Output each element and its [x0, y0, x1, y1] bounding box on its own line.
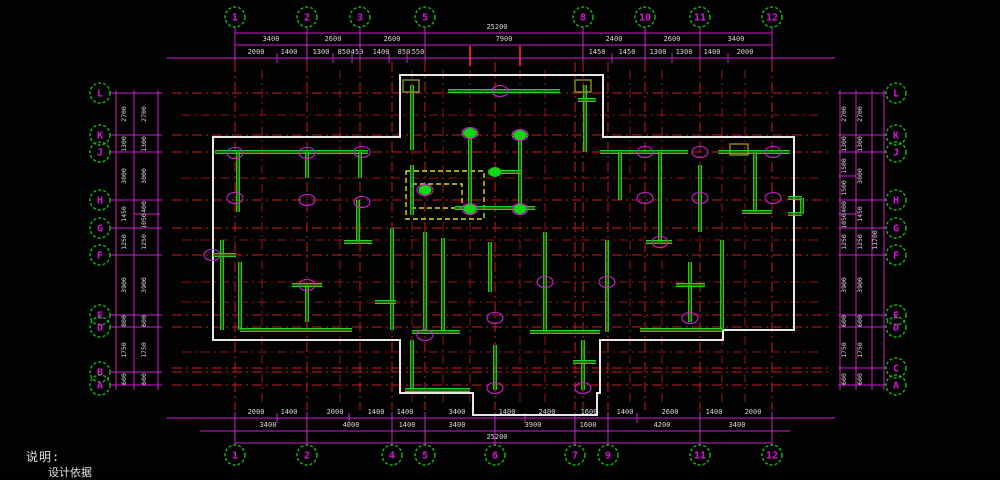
axis-bubble-label: C: [893, 364, 899, 375]
axis-bubble-2: 2: [297, 445, 317, 465]
dim-text: 600: [856, 373, 864, 385]
axis-bubble-L: L: [90, 83, 110, 103]
axis-bubble-5: 5: [415, 445, 435, 465]
dim-text: 1500: [840, 180, 848, 196]
axis-bubble-1: 1: [225, 445, 245, 465]
dim-text: 1250: [840, 234, 848, 250]
axis-bubble-8: 8: [573, 7, 593, 27]
dim-text: 2700: [140, 106, 148, 122]
axis-bubble-label: 5: [422, 13, 428, 24]
column-dot: [419, 185, 432, 195]
dim-text: 1750: [856, 342, 864, 358]
dim-text: 3000: [120, 168, 128, 184]
dim-text: 1300: [140, 136, 148, 152]
axis-bubble-label: G: [97, 224, 103, 235]
dim-text: 3400: [729, 421, 746, 429]
axis-bubble-label: 11: [694, 13, 706, 24]
dim-text: 1400: [617, 408, 634, 416]
axis-bubble-label: 12: [766, 13, 778, 24]
axis-bubble-label: F: [97, 251, 103, 262]
dim-text: 1400: [397, 408, 414, 416]
dim-text: 600: [856, 315, 864, 327]
axis-bubble-G: G: [886, 218, 906, 238]
column-dot: [514, 130, 527, 140]
axis-bubble-label: A: [97, 381, 103, 392]
axis-bubble-9: 9: [598, 445, 618, 465]
column-dot: [464, 204, 477, 214]
dim-text: 2000: [248, 408, 265, 416]
axis-bubble-label: 12: [766, 451, 778, 462]
dim-text: 400: [140, 201, 148, 213]
axis-bubble-H: H: [886, 190, 906, 210]
dim-text: 4000: [343, 421, 360, 429]
dim-text: 600: [120, 373, 128, 385]
axis-bubble-label: B: [97, 368, 103, 379]
axis-bubble-label: L: [893, 89, 899, 100]
dim-text: 1400: [706, 408, 723, 416]
dim-text: 550: [412, 48, 425, 56]
axis-bubble-11: 11: [690, 7, 710, 27]
axis-bubble-label: H: [893, 196, 899, 207]
axis-bubble-10: 10: [635, 7, 655, 27]
dim-text: 25200: [486, 433, 507, 441]
building-outline: [213, 75, 794, 415]
cad-drawing: 2520034002600260079002400260034002000140…: [0, 0, 1000, 475]
axis-bubble-label: J: [97, 148, 103, 159]
axis-bubble-F: F: [90, 245, 110, 265]
axis-bubble-label: D: [97, 323, 103, 334]
axis-bubble-label: K: [893, 131, 899, 142]
axis-bubble-label: 1: [232, 13, 238, 24]
axis-bubble-label: A: [893, 381, 899, 392]
dim-text: 1250: [120, 234, 128, 250]
axis-bubble-label: G: [893, 224, 899, 235]
dim-text: 800: [120, 315, 128, 327]
dim-text: 850: [398, 48, 411, 56]
dim-text: 2000: [248, 48, 265, 56]
dim-text: 1300: [120, 136, 128, 152]
axis-bubble-12: 12: [762, 445, 782, 465]
axis-bubble-B: B: [90, 362, 110, 382]
notes-label: 说明:: [26, 450, 92, 465]
dim-text: 1400: [281, 408, 298, 416]
axis-bubble-label: D: [893, 323, 899, 334]
axis-bubble-label: 11: [694, 451, 706, 462]
axis-bubble-label: K: [97, 131, 103, 142]
dim-text: 1750: [840, 342, 848, 358]
notes-line2: 设计依据: [48, 465, 92, 480]
axis-bubble-label: E: [97, 311, 103, 322]
dim-text: 2600: [662, 408, 679, 416]
axis-bubble-label: 7: [572, 451, 578, 462]
dim-text: 1400: [373, 48, 390, 56]
dim-text: 1750: [120, 342, 128, 358]
dimension-lines: 2520034002600260079002400260034002000140…: [110, 23, 886, 445]
axis-bubble-2: 2: [297, 7, 317, 27]
axis-bubble-label: 10: [639, 13, 651, 24]
column-dot: [464, 128, 477, 138]
axis-bubble-12: 12: [762, 7, 782, 27]
dim-text: 1300: [313, 48, 330, 56]
axis-bubble-label: H: [97, 196, 103, 207]
axis-bubble-3: 3: [350, 7, 370, 27]
dim-text: 600: [140, 373, 148, 385]
cad-viewport: 2520034002600260079002400260034002000140…: [0, 0, 1000, 475]
dim-text: 1300: [856, 136, 864, 152]
axis-bubble-1: 1: [225, 7, 245, 27]
axis-bubble-4: 4: [382, 445, 402, 465]
dim-text: 1300: [676, 48, 693, 56]
dim-text: 2000: [327, 408, 344, 416]
axis-bubble-7: 7: [565, 445, 585, 465]
axis-bubble-label: 3: [357, 13, 363, 24]
dim-text: 3900: [525, 421, 542, 429]
dim-text: 1450: [619, 48, 636, 56]
dim-text: 25200: [486, 23, 507, 31]
axis-bubble-6: 6: [485, 445, 505, 465]
dim-text: 2700: [120, 106, 128, 122]
dim-text: 3400: [260, 421, 277, 429]
dim-text: 3400: [449, 421, 466, 429]
axis-bubble-label: 4: [389, 451, 395, 462]
notes-block: 说明: 设计依据: [26, 450, 92, 480]
axis-bubble-label: 8: [580, 13, 586, 24]
junction-ellipse: [765, 193, 781, 204]
dim-text: 600: [840, 315, 848, 327]
dim-text: 1450: [856, 206, 864, 222]
axis-bubble-label: J: [893, 148, 899, 159]
dim-text: 850: [338, 48, 351, 56]
dim-text: 1400: [281, 48, 298, 56]
dim-text: 2000: [737, 48, 754, 56]
dim-text: 600: [140, 315, 148, 327]
axis-bubble-H: H: [90, 190, 110, 210]
dim-text: 1750: [140, 342, 148, 358]
dim-text: 3900: [840, 277, 848, 293]
dim-text: 2700: [856, 106, 864, 122]
dim-text: 3900: [856, 277, 864, 293]
dim-text: 1050: [840, 213, 848, 229]
wall-segments: [213, 80, 803, 391]
axis-bubble-label: F: [893, 251, 899, 262]
dim-text: 1250: [140, 234, 148, 250]
axis-bubble-label: 5: [422, 451, 428, 462]
dim-text: 1400: [399, 421, 416, 429]
dim-text: 1050: [140, 213, 148, 229]
dim-text: 2000: [745, 408, 762, 416]
dim-text: 2400: [606, 35, 623, 43]
axis-bubble-label: 2: [304, 451, 310, 462]
axis-bubble-5: 5: [415, 7, 435, 27]
dim-text: 450: [351, 48, 364, 56]
dim-text: 3900: [120, 277, 128, 293]
axis-bubble-label: E: [893, 311, 899, 322]
dim-text: 1300: [840, 136, 848, 152]
axis-bubble-label: 2: [304, 13, 310, 24]
dim-text: 7900: [496, 35, 513, 43]
dim-text: 2600: [384, 35, 401, 43]
axis-bubble-label: 9: [605, 451, 611, 462]
dim-text: 400: [840, 201, 848, 213]
dim-text: 1400: [704, 48, 721, 56]
dim-text: 4200: [654, 421, 671, 429]
dim-text: 3900: [140, 277, 148, 293]
axis-bubble-label: 6: [492, 451, 498, 462]
column-dot: [514, 204, 527, 214]
axis-bubble-F: F: [886, 245, 906, 265]
red-axis-grid: [172, 46, 830, 410]
dim-text: 1450: [589, 48, 606, 56]
dim-text: 2600: [325, 35, 342, 43]
dim-text: 2700: [840, 106, 848, 122]
axis-bubble-G: G: [90, 218, 110, 238]
dim-text: 1300: [650, 48, 667, 56]
axis-bubble-label: 1: [232, 451, 238, 462]
dim-text: 3400: [728, 35, 745, 43]
axis-bubble-label: L: [97, 89, 103, 100]
dim-text: 600: [840, 373, 848, 385]
dim-text: 1400: [368, 408, 385, 416]
dim-text: 3400: [263, 35, 280, 43]
dim-text: 2600: [664, 35, 681, 43]
dim-text: 3000: [856, 168, 864, 184]
axis-bubble-11: 11: [690, 445, 710, 465]
dim-text: 1600: [580, 421, 597, 429]
dim-text: 11700: [871, 230, 879, 250]
dim-text: 1450: [120, 206, 128, 222]
axis-bubble-L: L: [886, 83, 906, 103]
dim-text: 3400: [449, 408, 466, 416]
dim-text: 1500: [840, 158, 848, 174]
column-dot: [489, 167, 502, 177]
dim-text: 3000: [140, 168, 148, 184]
dim-text: 1250: [856, 234, 864, 250]
